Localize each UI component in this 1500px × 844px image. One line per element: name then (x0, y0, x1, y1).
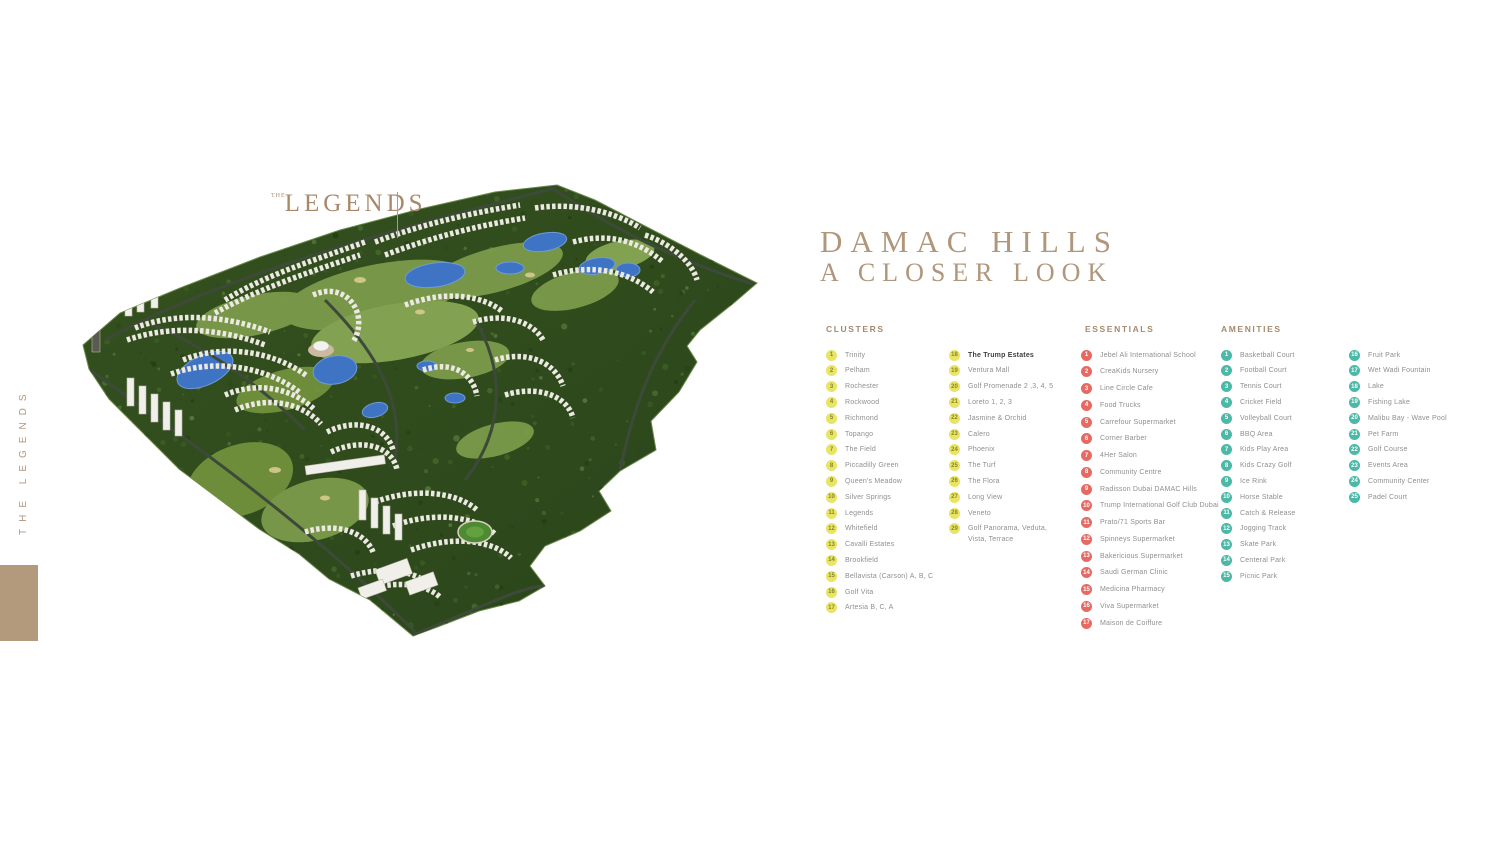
legend-item-label: Community Centre (1100, 469, 1162, 476)
legend-item-marker: 8 (826, 460, 837, 471)
legend-item: 8Kids Crazy Golf (1221, 460, 1292, 472)
legend-item: 15Picnic Park (1221, 570, 1277, 582)
legend-item-label: Community Center (1368, 478, 1430, 485)
legend-item-label: Trinity (845, 352, 865, 359)
legend-item: 26The Flora (949, 475, 1000, 487)
legend-item-label: Picnic Park (1240, 573, 1277, 580)
legend-item-marker: 3 (1221, 381, 1232, 392)
legend-item: 21Loreto 1, 2, 3 (949, 396, 1012, 408)
legend-item-marker: 15 (1221, 571, 1232, 582)
legend-item-label: Golf Course (1368, 446, 1408, 453)
legend-item-label: Spinneys Supermarket (1100, 536, 1175, 543)
legend-item: 14Centeral Park (1221, 554, 1285, 566)
legend-item-label: Corner Barber (1100, 435, 1147, 442)
legend-item: 3Tennis Court (1221, 381, 1282, 393)
legend-item: 5Volleyball Court (1221, 412, 1292, 424)
legend-item-marker: 21 (1349, 429, 1360, 440)
legend-item-marker: 21 (949, 397, 960, 408)
legend-item: 3Line Circle Cafe (1081, 383, 1153, 395)
legend-item-label: Basketball Court (1240, 352, 1295, 359)
legend-item-label: Kids Crazy Golf (1240, 462, 1292, 469)
legend-item-label: Phoenix (968, 446, 995, 453)
legend-item: 8Piccadilly Green (826, 460, 899, 472)
legend-item-label: Bakericious Supermarket (1100, 553, 1183, 560)
legend-item-marker: 13 (1081, 551, 1092, 562)
masterplan-map-graphic (75, 180, 765, 650)
legend-item: 19Fishing Lake (1349, 396, 1410, 408)
legend-item-label: Rochester (845, 383, 879, 390)
legend-item: 24Community Center (1349, 475, 1430, 487)
legend-item-label: Topango (845, 431, 873, 438)
legend-item: 2Football Court (1221, 365, 1287, 377)
legend-item: 9Queen's Meadow (826, 475, 902, 487)
legend-item-marker: 15 (1081, 584, 1092, 595)
legend-item: 22Golf Course (1349, 444, 1408, 456)
legend-item-marker: 11 (1221, 508, 1232, 519)
legend-item-label: Saudi German Clinic (1100, 569, 1168, 576)
legend-item-marker: 15 (826, 571, 837, 582)
legend-item-marker: 17 (1349, 365, 1360, 376)
vertical-page-label: THE LEGENDS (18, 383, 44, 539)
legend-item-marker: 1 (1081, 350, 1092, 361)
legend-item-label: Long View (968, 494, 1002, 501)
legend-item-label: Richmond (845, 415, 878, 422)
legend-item-marker: 7 (1081, 450, 1092, 461)
legend-item: 11Legends (826, 507, 873, 519)
legend-item-marker: 22 (949, 413, 960, 424)
legend-item: 7The Field (826, 444, 876, 456)
legend-item-marker: 12 (1081, 534, 1092, 545)
legend-item-marker: 6 (826, 429, 837, 440)
legend-item: 17Wet Wadi Fountain (1349, 365, 1431, 377)
legend-item: 16Fruit Park (1349, 349, 1400, 361)
legend-item: 18The Trump Estates (949, 349, 1034, 361)
legend-item: 11Prato/71 Sports Bar (1081, 517, 1165, 529)
map-logo-divider (397, 192, 398, 238)
legend-item-label: Events Area (1368, 462, 1408, 469)
legend-item-marker: 18 (1349, 381, 1360, 392)
legend-item: 10Trump International Golf Club Dubai (1081, 500, 1219, 512)
legend-item-label: The Flora (968, 478, 1000, 485)
legend-item-label: Silver Springs (845, 494, 891, 501)
legend-item: 5Richmond (826, 412, 878, 424)
legend-item-label: Golf Vita (845, 589, 874, 596)
legend-item: 13Skate Park (1221, 539, 1276, 551)
legend-item: 17Artesia B, C, A (826, 602, 894, 614)
legend-item-marker: 1 (826, 350, 837, 361)
legend-item-label: Fishing Lake (1368, 399, 1410, 406)
legend-item: 15Bellavista (Carson) A, B, C (826, 570, 933, 582)
legend-item-label: Calero (968, 431, 990, 438)
legend-item-label: Medicina Pharmacy (1100, 586, 1165, 593)
legend-item-marker: 19 (1349, 397, 1360, 408)
legend-item-label: Vista, Terrace (968, 536, 1013, 543)
legend-item: 8Community Centre (1081, 466, 1162, 478)
legend-item-label: Rockwood (845, 399, 879, 406)
legend-item-marker: 18 (949, 350, 960, 361)
legend-item-label: 4Her Salon (1100, 452, 1137, 459)
legend-item-label: Viva Supermarket (1100, 603, 1159, 610)
legend-item: 21Pet Farm (1349, 428, 1398, 440)
legend-item-label: Queen's Meadow (845, 478, 902, 485)
legend-item: 17Maison de Coiffure (1081, 617, 1162, 629)
legend-item-marker: 7 (826, 444, 837, 455)
amenities-header: AMENITIES (1221, 324, 1282, 334)
legend-item-marker: 3 (1081, 383, 1092, 394)
map-logo-the: THE (271, 193, 286, 199)
legend-item: 18Lake (1349, 381, 1384, 393)
legend-item-marker: 22 (1349, 444, 1360, 455)
legend-item: 6BBQ Area (1221, 428, 1273, 440)
cricket-field (458, 521, 492, 543)
legend-item-marker: 12 (826, 523, 837, 534)
legend-item: 20Golf Promenade 2 ,3, 4, 5 (949, 381, 1053, 393)
legend-item-marker: 5 (1221, 413, 1232, 424)
legend-item-label: Golf Promenade 2 ,3, 4, 5 (968, 383, 1053, 390)
legend-item: 10Silver Springs (826, 491, 891, 503)
legend-item-marker: 8 (1081, 467, 1092, 478)
page-title: DAMAC HILLS A CLOSER LOOK (820, 225, 1119, 288)
legend-item-label: CreaKids Nursery (1100, 368, 1158, 375)
legend-item-marker: 14 (1081, 567, 1092, 578)
legend-item-label: Prato/71 Sports Bar (1100, 519, 1165, 526)
legend-item-label: Jasmine & Orchid (968, 415, 1026, 422)
legend-item: 12Jogging Track (1221, 523, 1286, 535)
land-polygon (83, 185, 757, 636)
legend-item: 16Viva Supermarket (1081, 600, 1159, 612)
legend-item-label: Whitefield (845, 525, 878, 532)
legend-item-label: Kids Play Area (1240, 446, 1288, 453)
legend-item: 3Rochester (826, 381, 879, 393)
legend-item: 28Veneto (949, 507, 991, 519)
legend-item-label: Malibu Bay - Wave Pool (1368, 415, 1447, 422)
legend-item: 2CreaKids Nursery (1081, 366, 1158, 378)
legend-item-label: Ice Rink (1240, 478, 1267, 485)
legend-item-marker: 12 (1221, 523, 1232, 534)
legend-item-marker: 28 (949, 508, 960, 519)
legend-item-marker: 4 (1221, 397, 1232, 408)
legend-item: 15Medicina Pharmacy (1081, 584, 1165, 596)
legend-item: 7Kids Play Area (1221, 444, 1288, 456)
legend-item: 1Jebel Ali International School (1081, 349, 1196, 361)
legend-item-marker: 17 (1081, 618, 1092, 629)
legend-item: 4Cricket Field (1221, 396, 1282, 408)
legend-item: 23Events Area (1349, 460, 1408, 472)
legend-item-label: Food Trucks (1100, 402, 1141, 409)
legend-item-label: Jogging Track (1240, 525, 1286, 532)
legend-item-label: Carrefour Supermarket (1100, 419, 1176, 426)
legend-item-label: Cavalli Estates (845, 541, 894, 548)
legend-item: 9Ice Rink (1221, 475, 1267, 487)
legend-item-label: Padel Court (1368, 494, 1407, 501)
legend-item-label: Tennis Court (1240, 383, 1282, 390)
clusters-header: CLUSTERS (826, 324, 885, 334)
legend-item-label: Golf Panorama, Veduta, (968, 525, 1047, 532)
legend-item-marker: 11 (826, 508, 837, 519)
legend-item: 14Brookfield (826, 554, 878, 566)
legend-item-marker: 23 (949, 429, 960, 440)
legend-item-marker: 16 (1081, 601, 1092, 612)
legend-item-marker: 6 (1221, 429, 1232, 440)
legend-item-label: The Turf (968, 462, 996, 469)
legend-item-label: Horse Stable (1240, 494, 1283, 501)
legend-item-marker: 10 (826, 492, 837, 503)
legend-item-marker: 9 (1221, 476, 1232, 487)
legend-item-label: BBQ Area (1240, 431, 1273, 438)
legend-item-label: Pet Farm (1368, 431, 1398, 438)
legend-item: 13Cavalli Estates (826, 539, 894, 551)
legend-item: 5Carrefour Supermarket (1081, 416, 1176, 428)
legend-item: 27Long View (949, 491, 1002, 503)
legend-item: 23Calero (949, 428, 990, 440)
legend-item-marker: 29 (949, 523, 960, 534)
legend-item: 9Radisson Dubai DAMAC Hills (1081, 483, 1197, 495)
map-legends-logo: THELEGENDS (271, 190, 427, 218)
legend-item: 74Her Salon (1081, 450, 1137, 462)
legend-item: 20Malibu Bay - Wave Pool (1349, 412, 1447, 424)
legend-item: 4Rockwood (826, 396, 879, 408)
legend-item-label: Line Circle Cafe (1100, 385, 1153, 392)
legend-item: 13Bakericious Supermarket (1081, 550, 1183, 562)
legend-item: 22Jasmine & Orchid (949, 412, 1026, 424)
legend-item-marker: 16 (826, 587, 837, 598)
legend-item: 14Saudi German Clinic (1081, 567, 1168, 579)
legend-item: 1Trinity (826, 349, 865, 361)
legend-item-marker: 2 (1081, 366, 1092, 377)
decorative-tan-block (0, 565, 38, 641)
legend-item-marker: 19 (949, 365, 960, 376)
page-title-line1: DAMAC HILLS (820, 225, 1119, 258)
legend-item-marker: 27 (949, 492, 960, 503)
legend-item-marker: 5 (826, 413, 837, 424)
legend-item: 1Basketball Court (1221, 349, 1295, 361)
legend-item-marker: 7 (1221, 444, 1232, 455)
legend-item-marker: 10 (1221, 492, 1232, 503)
legend-item-label: Football Court (1240, 367, 1287, 374)
legend-item-label: Cricket Field (1240, 399, 1282, 406)
legend-item: 16Golf Vita (826, 586, 874, 598)
legend-item-marker: 20 (949, 381, 960, 392)
legend-item: 6Corner Barber (1081, 433, 1147, 445)
legend-item-marker: 9 (1081, 484, 1092, 495)
legend-item-marker: 4 (1081, 400, 1092, 411)
legend-item-marker: 6 (1081, 433, 1092, 444)
masterplan-map: THELEGENDS (75, 180, 765, 650)
legend-item-label: The Trump Estates (968, 352, 1034, 359)
legend-item-label: Brookfield (845, 557, 878, 564)
legend-item-marker: 17 (826, 602, 837, 613)
legend-item-label: Fruit Park (1368, 352, 1400, 359)
legend-item: 11Catch & Release (1221, 507, 1296, 519)
legend-item-continuation: Vista, Terrace (949, 534, 1013, 546)
legend-item-label: Legends (845, 510, 873, 517)
legend-item-marker: 13 (1221, 539, 1232, 550)
legend-item-marker: 24 (949, 444, 960, 455)
legend-item-label: Skate Park (1240, 541, 1276, 548)
legend-item: 10Horse Stable (1221, 491, 1283, 503)
legend-item-marker: 1 (1221, 350, 1232, 361)
legend-item-marker: 11 (1081, 517, 1092, 528)
legend-item-marker: 24 (1349, 476, 1360, 487)
legend-item-label: Radisson Dubai DAMAC Hills (1100, 486, 1197, 493)
legend-item-label: Ventura Mall (968, 367, 1009, 374)
legend-item-label: Volleyball Court (1240, 415, 1292, 422)
legend-item: 24Phoenix (949, 444, 995, 456)
legend-item-label: Trump International Golf Club Dubai (1100, 502, 1219, 509)
legend-item-marker: 9 (826, 476, 837, 487)
legend-item: 12Whitefield (826, 523, 878, 535)
legend-item: 19Ventura Mall (949, 365, 1009, 377)
legend-item-label: The Field (845, 446, 876, 453)
legend-item-label: Veneto (968, 510, 991, 517)
legend-item-marker: 3 (826, 381, 837, 392)
legend-item-label: Pelham (845, 367, 870, 374)
legend-item-label: Catch & Release (1240, 510, 1296, 517)
legend-item: 12Spinneys Supermarket (1081, 533, 1175, 545)
legend-item-marker: 25 (949, 460, 960, 471)
map-logo-main: LEGENDS (285, 190, 427, 217)
legend-item-marker: 2 (1221, 365, 1232, 376)
legend-item-marker: 10 (1081, 500, 1092, 511)
legend-item: 25Padel Court (1349, 491, 1407, 503)
legend-item: 2Pelham (826, 365, 870, 377)
legend-item-marker: 13 (826, 539, 837, 550)
legend-item-marker: 4 (826, 397, 837, 408)
legend-item-label: Wet Wadi Fountain (1368, 367, 1431, 374)
legend-item-label: Jebel Ali International School (1100, 352, 1196, 359)
legend-item-label: Piccadilly Green (845, 462, 899, 469)
legend-item-marker: 5 (1081, 417, 1092, 428)
legend-item: 25The Turf (949, 460, 996, 472)
legend-item-marker: 8 (1221, 460, 1232, 471)
legend-item-label: Artesia B, C, A (845, 604, 894, 611)
legend-item-marker: 26 (949, 476, 960, 487)
legend-item-label: Lake (1368, 383, 1384, 390)
legend-item-label: Centeral Park (1240, 557, 1285, 564)
legend-item: 6Topango (826, 428, 873, 440)
legend-item-marker: 20 (1349, 413, 1360, 424)
legend-item-marker: 25 (1349, 492, 1360, 503)
legend-item-marker: 16 (1349, 350, 1360, 361)
legend-item-marker: 14 (826, 555, 837, 566)
legend-item-label: Maison de Coiffure (1100, 620, 1162, 627)
essentials-header: ESSENTIALS (1085, 324, 1154, 334)
legend-item: 4Food Trucks (1081, 399, 1141, 411)
legend-item-label: Bellavista (Carson) A, B, C (845, 573, 933, 580)
legend-item-marker: 14 (1221, 555, 1232, 566)
legend-item-label: Loreto 1, 2, 3 (968, 399, 1012, 406)
legend-item-marker: 23 (1349, 460, 1360, 471)
legend-item-marker: 2 (826, 365, 837, 376)
page-title-line2: A CLOSER LOOK (820, 258, 1119, 288)
